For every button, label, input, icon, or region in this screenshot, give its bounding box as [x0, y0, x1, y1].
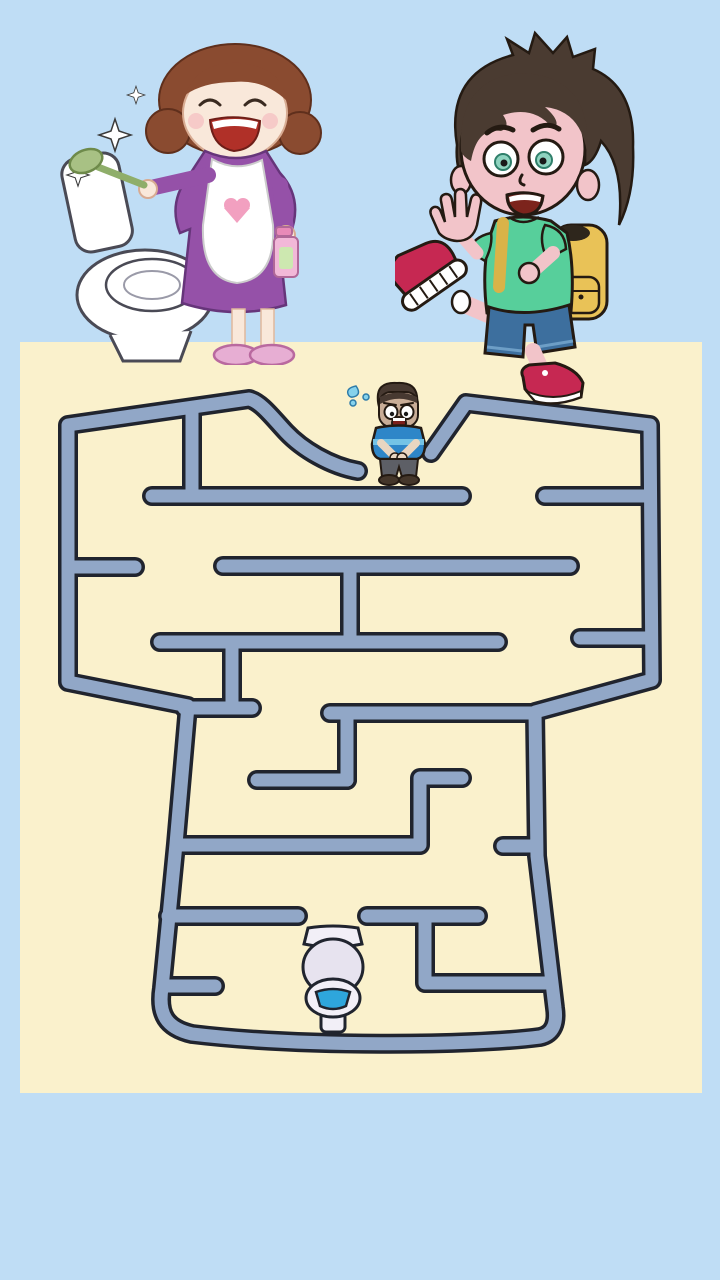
sweat-drops-icon [348, 386, 369, 406]
goal-toilet [296, 922, 370, 1037]
toilet-water [316, 989, 350, 1009]
standing-shoe-image [522, 363, 583, 403]
game-screen: { "scene": { "background_color": "#BFDDF… [0, 0, 720, 1280]
waving-hand [430, 189, 481, 241]
player-character-man[interactable] [340, 380, 430, 490]
mom-cleaning-toilet-illustration [40, 25, 340, 365]
boy-walking-illustration [395, 25, 655, 415]
